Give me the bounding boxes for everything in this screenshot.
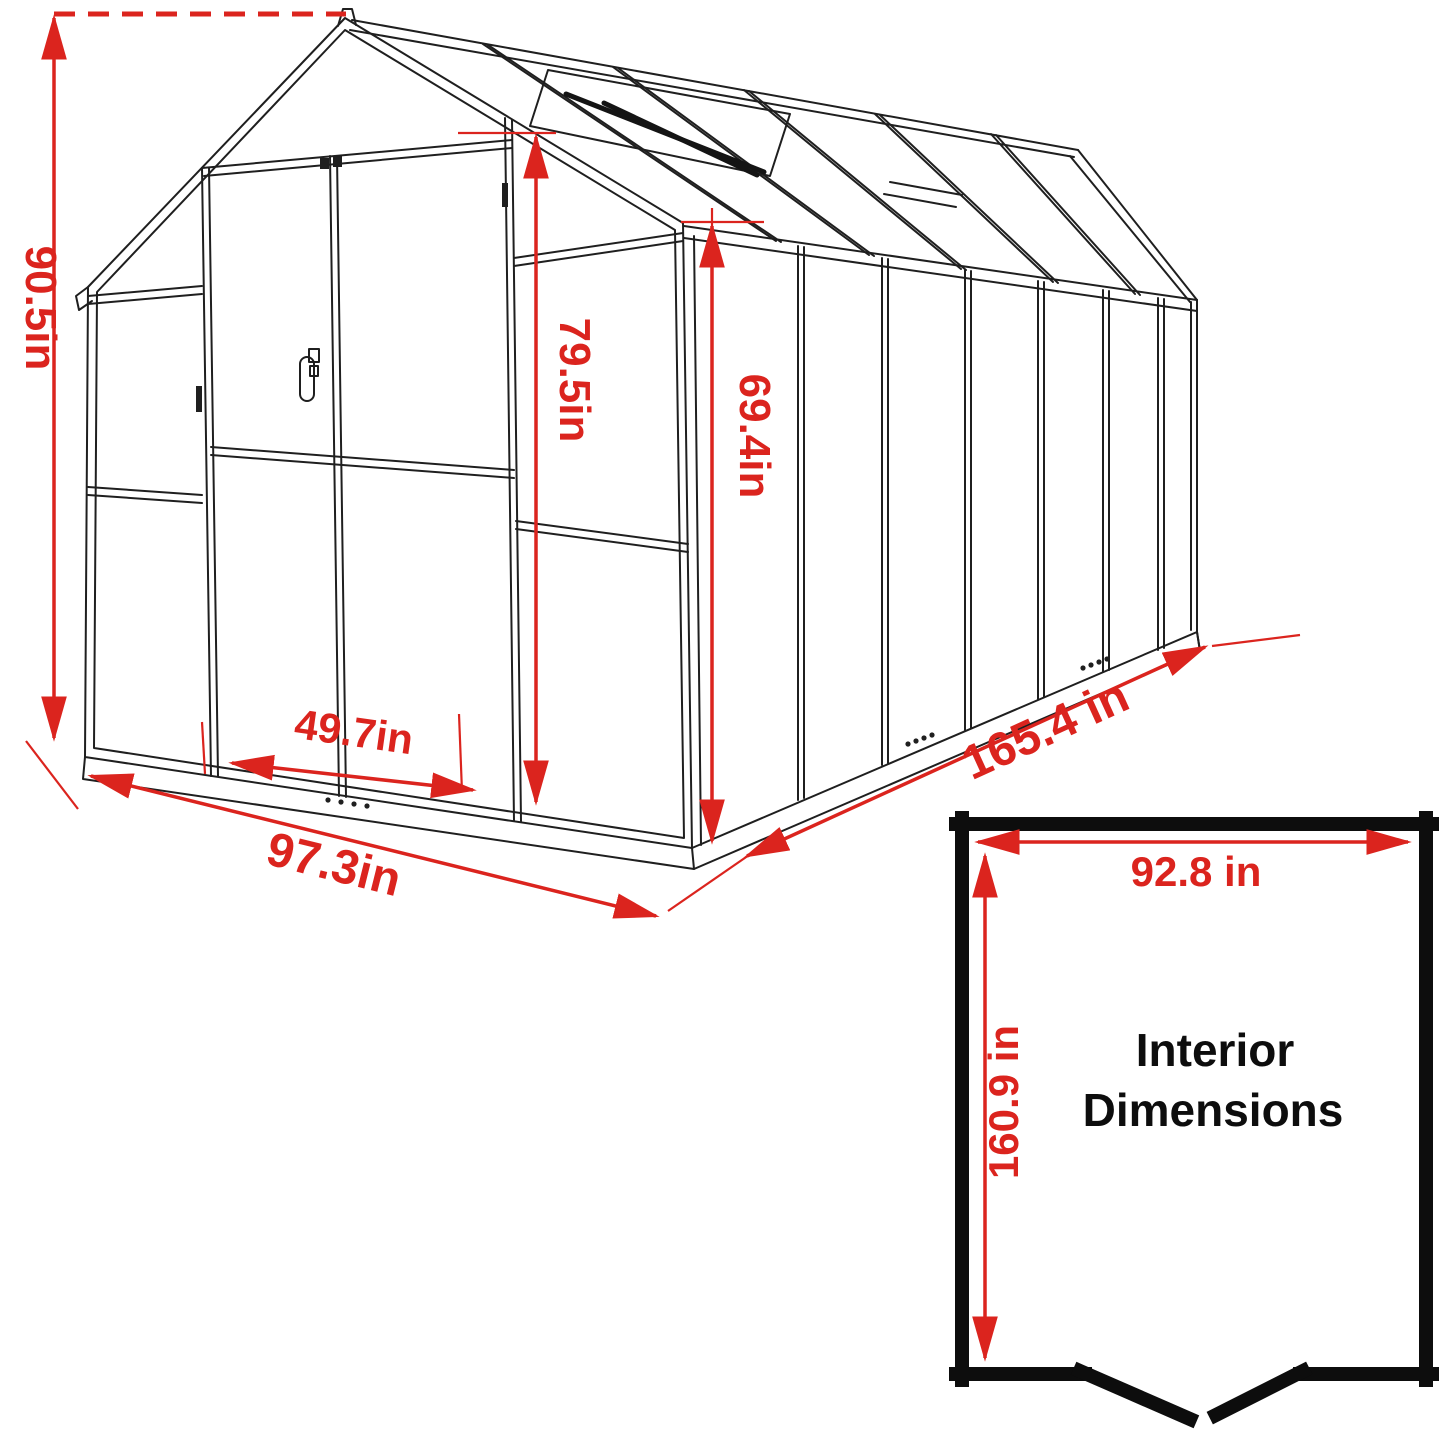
greenhouse-dimension-diagram: 90.5in 79.5in 69.4in 49.7in 97.3in 165.4… xyxy=(0,0,1445,1445)
interior-dimensions-box: 92.8 in 160.9 in Interior Dimensions xyxy=(956,818,1432,1419)
dimension-overall-height: 90.5in xyxy=(16,14,346,809)
label-interior-width: 92.8 in xyxy=(1131,848,1262,895)
label-eave-height: 69.4in xyxy=(730,374,779,499)
left-eave-bracket xyxy=(76,287,92,310)
side-wall xyxy=(684,226,1197,845)
dimension-door-width: 49.7in xyxy=(202,700,473,792)
label-interior-depth: 160.9 in xyxy=(980,1025,1027,1179)
door-hinge-mark2 xyxy=(502,183,508,207)
door-pivot-left xyxy=(320,158,329,169)
roof xyxy=(350,20,1197,302)
label-door-width: 49.7in xyxy=(292,700,416,763)
diagram-canvas: 90.5in 79.5in 69.4in 49.7in 97.3in 165.4… xyxy=(0,0,1445,1445)
door-handle xyxy=(300,349,319,401)
door-hinge-mark xyxy=(196,386,202,412)
door-pivot-right xyxy=(333,156,342,167)
interior-title-line1: Interior xyxy=(1136,1024,1295,1076)
label-overall-height: 90.5in xyxy=(16,246,65,371)
label-door-height: 79.5in xyxy=(550,318,599,443)
label-side-length: 165.4 in xyxy=(954,669,1136,790)
interior-title-line2: Dimensions xyxy=(1083,1084,1344,1136)
